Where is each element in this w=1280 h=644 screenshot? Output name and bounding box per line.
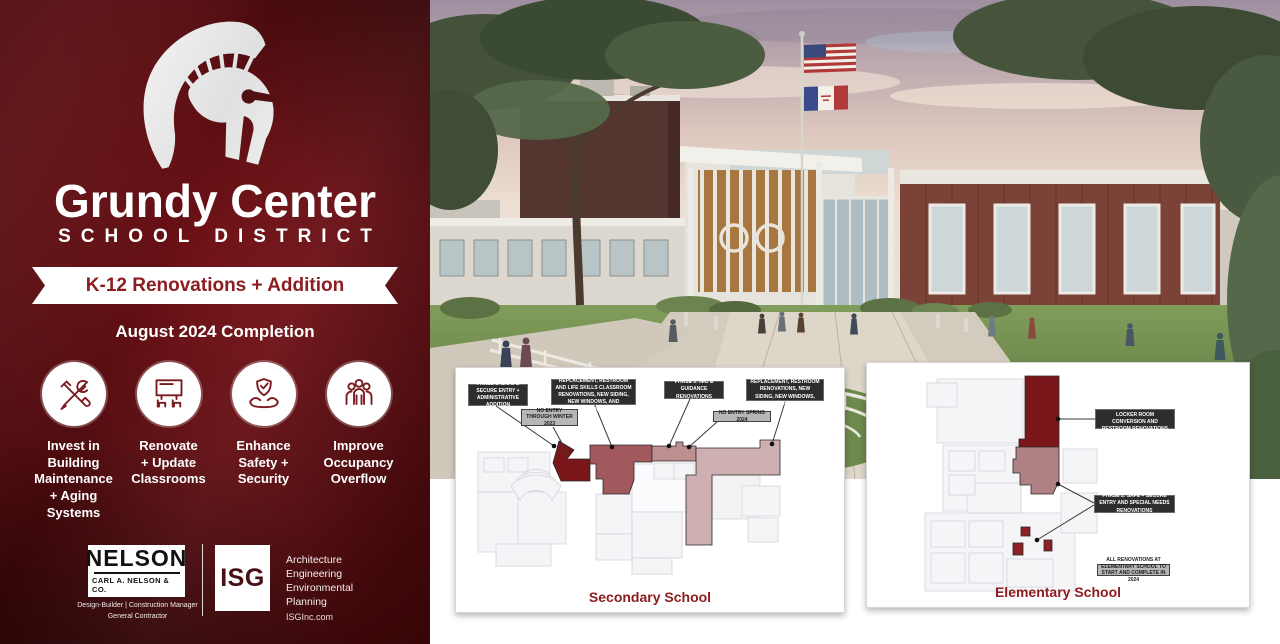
project-ribbon-label: K-12 Renovations + Addition (86, 275, 344, 297)
glass-entry (822, 198, 892, 308)
district-subtitle: SCHOOL DISTRICT (0, 226, 430, 248)
tools-icon (42, 362, 106, 426)
isg-name: ISG (220, 564, 265, 593)
secondary-note-winter: NO ENTRY THROUGH WINTER 2023 (521, 409, 578, 426)
elementary-phase1-callout: PHASE 1: UNDERUTILIZED LOCKER ROOM CONVE… (1095, 409, 1175, 429)
isg-services: Architecture Engineering Environmental P… (286, 554, 353, 609)
elementary-school-plan-panel: PHASE 1: UNDERUTILIZED LOCKER ROOM CONVE… (866, 362, 1250, 608)
secondary-school-plan-panel: PHASE 1: SAFE & SECURE ENTRY + ADMINISTR… (455, 367, 845, 613)
nelson-name: NELSON (86, 548, 188, 570)
feature-label: Enhance Safety + Security (236, 438, 290, 488)
elementary-phase2-callout: PHASE 2: SAFE + SECURE ENTRY AND SPECIAL… (1094, 495, 1175, 513)
phase2-room-b (1044, 540, 1052, 551)
completion-date: August 2024 Completion (0, 322, 430, 342)
elementary-school-caption: Elementary School (867, 584, 1249, 600)
spartan-helmet-icon (125, 12, 305, 172)
project-ribbon: K-12 Renovations + Addition (32, 267, 398, 304)
feature-label: Invest in Building Maintenance + Aging S… (26, 438, 121, 521)
shield-hands-icon (232, 362, 296, 426)
nelson-subname: CARL A. NELSON & CO. (92, 576, 181, 594)
isg-logo: ISG (215, 545, 270, 611)
feature-label: Improve Occupancy Overflow (323, 438, 393, 488)
district-title: Grundy Center (0, 178, 430, 224)
isg-website: ISGInc.com (286, 612, 333, 622)
feature-label: Renovate + Update Classrooms (131, 438, 205, 488)
feature-list: Invest in Building Maintenance + Aging S… (26, 362, 406, 521)
partner-logos: NELSON CARL A. NELSON & CO. Design-Build… (0, 540, 430, 630)
project-poster: Grundy Center SCHOOL DISTRICT K-12 Renov… (0, 0, 1280, 644)
secondary-note-spring: NO ENTRY SPRING 2024 (713, 411, 771, 422)
secondary-phase2-callout: PHASE 2: WEST WING HVAC REPLACEMENT, RES… (551, 379, 636, 405)
secondary-school-caption: Secondary School (456, 589, 844, 605)
iowa-flag (804, 85, 848, 111)
spartan-helmet-logo (0, 12, 430, 172)
nelson-divider (94, 572, 180, 574)
secondary-phase1-callout: PHASE 1: SAFE & SECURE ENTRY + ADMINISTR… (468, 384, 528, 406)
secondary-phase4-callout: PHASE 4: EAST WING HVAC REPLACEMENT, RES… (746, 379, 824, 401)
people-icon (327, 362, 391, 426)
classroom-icon (137, 362, 201, 426)
feature-invest: Invest in Building Maintenance + Aging S… (26, 362, 121, 521)
existing-rooms (925, 379, 1097, 591)
secondary-phase3-callout: PHASE 3: IMC & GUIDANCE RENOVATIONS (664, 381, 724, 399)
phase2-room-c (1013, 543, 1023, 555)
us-flag (804, 43, 856, 73)
nelson-logo: NELSON CARL A. NELSON & CO. (88, 545, 185, 597)
nelson-roles: Design-Builder | Construction Manager Ge… (60, 601, 215, 622)
partner-divider (202, 544, 203, 616)
feature-occupancy: Improve Occupancy Overflow (311, 362, 406, 521)
feature-safety: Enhance Safety + Security (216, 362, 311, 521)
phase1-area (553, 441, 590, 481)
elementary-note: ALL RENOVATIONS AT ELEMENTARY SCHOOL TO … (1097, 564, 1170, 576)
left-brand-panel: Grundy Center SCHOOL DISTRICT K-12 Renov… (0, 0, 430, 644)
entrance-canopy (680, 146, 894, 312)
phase1-area (1019, 376, 1059, 447)
elementary-floor-plan (867, 363, 1251, 609)
feature-renovate: Renovate + Update Classrooms (121, 362, 216, 521)
phase2-room-a (1021, 527, 1030, 536)
